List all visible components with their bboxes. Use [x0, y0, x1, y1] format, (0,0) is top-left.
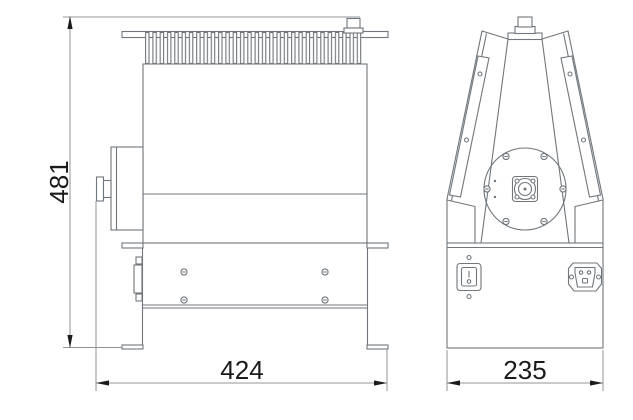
lens-barrel-outer	[97, 177, 104, 201]
lens-barrel-inner	[104, 181, 112, 198]
base-panel	[447, 243, 603, 348]
plate-screw	[503, 218, 509, 224]
inlet-screw	[597, 275, 601, 279]
dimension-depth: 235	[447, 350, 603, 391]
side-view	[97, 19, 389, 350]
iec-inlet-side-profile	[134, 257, 142, 301]
rail-screw	[568, 72, 572, 76]
switch-screw	[467, 256, 471, 260]
center-connector	[513, 177, 538, 202]
lens-port	[97, 147, 144, 230]
plate-screw	[484, 186, 490, 192]
base-screw	[322, 269, 328, 275]
connector-screw	[531, 195, 535, 199]
arrow-right-icon	[590, 380, 603, 385]
plate-screw	[560, 186, 566, 192]
a-frame-right-arm	[542, 31, 603, 243]
dim-height-label: 481	[44, 160, 74, 203]
rail-screw	[465, 138, 469, 142]
base-screw	[181, 297, 187, 303]
inlet-screw	[570, 275, 574, 279]
arrow-up-icon	[67, 16, 72, 29]
connector-screw	[515, 179, 519, 183]
bracket-flange-right	[367, 243, 388, 248]
connector-screw	[515, 195, 519, 199]
a-frame-left-arm	[447, 31, 508, 243]
base-screw	[322, 297, 328, 303]
plate-screw	[503, 153, 509, 159]
heatsink-fins-icon	[145, 32, 364, 64]
connector-screw	[531, 179, 535, 183]
foot-right	[367, 345, 388, 349]
rail-screw	[478, 72, 482, 76]
base-screw	[181, 269, 187, 275]
plate-screw	[541, 153, 547, 159]
top-mounting-bolt-front	[508, 17, 542, 40]
dim-width-label: 424	[220, 355, 263, 385]
technical-drawing: 481 424 235	[0, 0, 633, 420]
arrow-right-icon	[374, 380, 387, 385]
arrow-left-icon	[447, 380, 460, 385]
pin-dot	[494, 196, 496, 198]
pin-dot	[494, 180, 496, 182]
drawing-svg: 481 424 235	[0, 0, 633, 420]
arrow-down-icon	[67, 335, 72, 348]
rail-screw	[582, 138, 586, 142]
switch-screw	[467, 295, 471, 299]
arrow-left-icon	[96, 380, 109, 385]
bracket-flange-left	[122, 243, 143, 248]
rear-plate	[484, 148, 566, 230]
plate-screw	[541, 218, 547, 224]
foot-left	[122, 345, 143, 349]
iec-power-inlet	[569, 263, 602, 291]
base-bracket	[122, 243, 388, 349]
top-mounting-bolt	[344, 19, 363, 34]
front-view	[447, 17, 603, 348]
device-body	[143, 64, 367, 243]
dim-depth-label: 235	[503, 355, 546, 385]
